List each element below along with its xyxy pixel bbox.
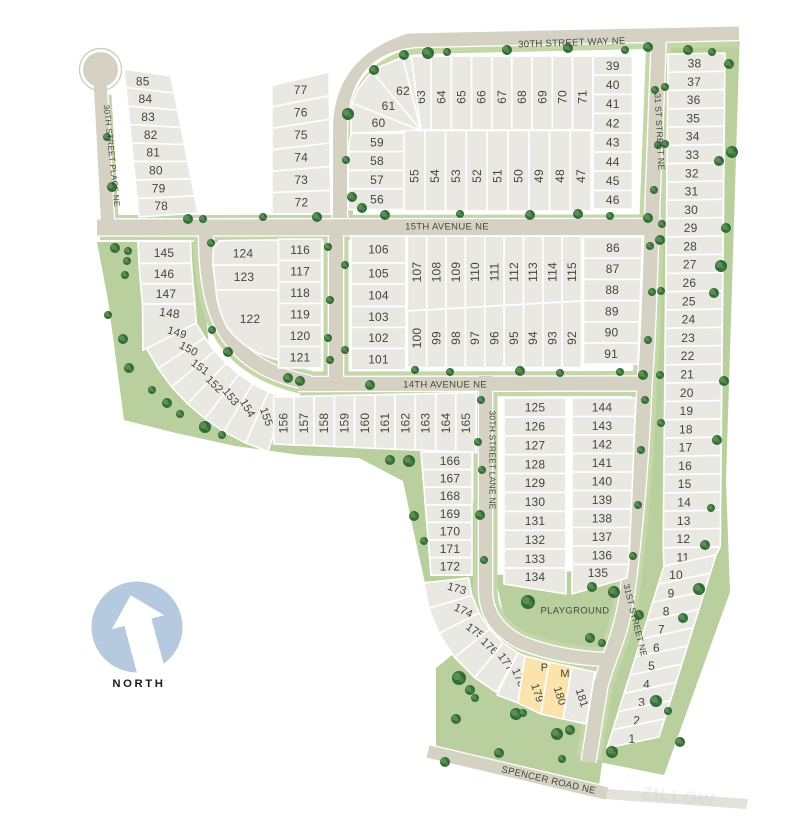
- svg-text:127: 127: [525, 438, 546, 452]
- svg-text:94: 94: [526, 331, 540, 345]
- svg-text:19: 19: [680, 404, 694, 418]
- svg-text:108: 108: [429, 262, 443, 283]
- svg-text:164: 164: [439, 413, 453, 434]
- svg-text:32: 32: [685, 166, 699, 180]
- svg-text:113: 113: [526, 262, 540, 282]
- svg-text:71: 71: [576, 90, 590, 104]
- svg-text:129: 129: [525, 476, 546, 490]
- svg-text:42: 42: [606, 116, 620, 130]
- svg-text:53: 53: [449, 169, 463, 183]
- svg-text:104: 104: [368, 288, 389, 302]
- svg-text:38: 38: [688, 57, 702, 71]
- svg-text:97: 97: [468, 331, 482, 345]
- svg-text:111: 111: [488, 262, 502, 281]
- svg-text:139: 139: [592, 493, 613, 507]
- svg-text:51: 51: [491, 169, 505, 183]
- svg-text:170: 170: [440, 524, 461, 538]
- svg-text:112: 112: [507, 262, 521, 282]
- svg-text:145: 145: [154, 246, 175, 260]
- svg-text:136: 136: [592, 549, 613, 563]
- svg-text:57: 57: [370, 173, 384, 187]
- svg-text:131: 131: [525, 514, 546, 528]
- svg-text:21: 21: [680, 368, 694, 382]
- svg-text:26: 26: [683, 276, 697, 290]
- svg-text:54: 54: [428, 169, 442, 183]
- svg-text:55: 55: [407, 169, 421, 183]
- svg-text:31: 31: [685, 185, 699, 199]
- svg-text:96: 96: [488, 331, 502, 345]
- svg-text:158: 158: [317, 413, 331, 434]
- svg-text:118: 118: [290, 286, 310, 300]
- svg-text:68: 68: [515, 90, 529, 104]
- svg-text:62: 62: [396, 84, 410, 98]
- svg-text:20: 20: [680, 386, 694, 400]
- svg-text:88: 88: [605, 283, 619, 297]
- svg-text:73: 73: [294, 173, 308, 187]
- svg-text:147: 147: [156, 287, 177, 301]
- svg-text:76: 76: [294, 106, 308, 120]
- svg-text:30TH STREET LANE NE: 30TH STREET LANE NE: [488, 410, 498, 509]
- svg-text:66: 66: [475, 90, 489, 104]
- svg-text:83: 83: [141, 110, 155, 124]
- svg-text:169: 169: [440, 507, 461, 521]
- svg-text:82: 82: [144, 128, 158, 142]
- svg-text:159: 159: [338, 413, 352, 434]
- svg-text:121: 121: [290, 350, 311, 364]
- svg-text:59: 59: [370, 136, 384, 150]
- svg-text:123: 123: [234, 270, 255, 284]
- svg-text:135: 135: [588, 566, 609, 580]
- svg-text:87: 87: [606, 262, 620, 276]
- svg-text:95: 95: [507, 331, 521, 345]
- svg-text:115: 115: [565, 262, 579, 282]
- svg-text:109: 109: [449, 262, 463, 283]
- svg-text:172: 172: [440, 560, 461, 574]
- svg-text:114: 114: [546, 262, 560, 282]
- svg-text:15: 15: [678, 477, 692, 491]
- svg-text:132: 132: [525, 533, 546, 547]
- svg-text:133: 133: [525, 552, 546, 566]
- svg-text:85: 85: [136, 74, 150, 88]
- svg-text:171: 171: [440, 542, 461, 556]
- svg-text:M: M: [560, 668, 569, 680]
- svg-text:93: 93: [546, 331, 560, 345]
- svg-text:35: 35: [686, 111, 700, 125]
- svg-text:14TH AVENUE NE: 14TH AVENUE NE: [403, 380, 487, 391]
- svg-text:33: 33: [686, 148, 700, 162]
- svg-text:27: 27: [683, 258, 697, 272]
- svg-text:22: 22: [681, 349, 695, 363]
- svg-text:36: 36: [687, 93, 701, 107]
- svg-text:162: 162: [398, 413, 412, 434]
- svg-text:17: 17: [679, 441, 693, 455]
- svg-text:78: 78: [154, 199, 168, 213]
- svg-text:67: 67: [495, 90, 509, 104]
- svg-text:165: 165: [459, 413, 473, 434]
- svg-text:44: 44: [606, 155, 620, 169]
- svg-text:157: 157: [297, 413, 311, 434]
- svg-text:130: 130: [525, 495, 546, 509]
- svg-text:106: 106: [368, 243, 389, 257]
- svg-text:122: 122: [240, 312, 261, 326]
- svg-text:98: 98: [449, 331, 463, 345]
- svg-text:146: 146: [154, 267, 175, 281]
- svg-text:69: 69: [535, 90, 549, 104]
- svg-text:119: 119: [290, 307, 310, 321]
- svg-text:105: 105: [368, 267, 389, 281]
- svg-text:103: 103: [368, 310, 389, 324]
- svg-text:110: 110: [468, 262, 482, 282]
- svg-text:161: 161: [378, 413, 392, 434]
- svg-text:37: 37: [687, 75, 701, 89]
- svg-text:72: 72: [295, 196, 309, 210]
- svg-text:PLAYGROUND: PLAYGROUND: [541, 605, 610, 616]
- svg-text:91: 91: [604, 347, 618, 361]
- svg-text:79: 79: [152, 181, 166, 195]
- svg-text:86: 86: [606, 241, 620, 255]
- svg-text:24: 24: [682, 313, 696, 327]
- svg-text:160: 160: [358, 413, 372, 434]
- svg-text:74: 74: [294, 151, 308, 165]
- svg-text:107: 107: [410, 262, 424, 283]
- svg-text:47: 47: [574, 169, 588, 183]
- svg-text:128: 128: [525, 457, 546, 471]
- svg-text:41: 41: [606, 97, 620, 111]
- svg-text:65: 65: [455, 90, 469, 104]
- svg-text:140: 140: [592, 474, 613, 488]
- svg-text:16: 16: [678, 459, 692, 473]
- svg-text:43: 43: [606, 136, 620, 150]
- svg-text:15TH AVENUE NE: 15TH AVENUE NE: [405, 222, 489, 233]
- svg-text:25: 25: [682, 294, 696, 308]
- svg-text:143: 143: [592, 419, 613, 433]
- svg-text:46: 46: [606, 193, 620, 207]
- svg-text:80: 80: [149, 164, 163, 178]
- svg-text:163: 163: [419, 413, 433, 434]
- svg-text:77: 77: [294, 83, 308, 97]
- svg-text:1: 1: [628, 732, 635, 746]
- svg-text:167: 167: [440, 472, 461, 486]
- svg-text:138: 138: [592, 512, 613, 526]
- svg-text:40: 40: [606, 78, 620, 92]
- svg-text:120: 120: [290, 329, 311, 343]
- svg-text:134: 134: [525, 570, 546, 584]
- svg-text:81: 81: [146, 146, 160, 160]
- svg-text:30: 30: [684, 203, 698, 217]
- svg-text:117: 117: [290, 264, 310, 278]
- svg-text:90: 90: [605, 326, 619, 340]
- svg-text:126: 126: [525, 420, 546, 434]
- svg-text:101: 101: [368, 352, 389, 366]
- svg-text:48: 48: [553, 169, 567, 183]
- svg-text:34: 34: [686, 130, 700, 144]
- svg-text:60: 60: [372, 116, 386, 130]
- svg-text:39: 39: [606, 59, 620, 73]
- svg-text:142: 142: [592, 437, 613, 451]
- svg-text:23: 23: [681, 331, 695, 345]
- svg-text:12: 12: [677, 532, 691, 546]
- svg-text:89: 89: [605, 304, 619, 318]
- svg-text:125: 125: [525, 401, 546, 415]
- svg-text:18: 18: [679, 422, 693, 436]
- svg-text:52: 52: [470, 169, 484, 183]
- svg-text:141: 141: [592, 456, 613, 470]
- svg-text:28: 28: [683, 239, 697, 253]
- svg-text:137: 137: [592, 530, 613, 544]
- svg-text:56: 56: [370, 192, 384, 206]
- svg-text:49: 49: [532, 169, 546, 183]
- svg-text:64: 64: [434, 90, 448, 104]
- svg-text:61: 61: [382, 99, 396, 113]
- svg-text:84: 84: [139, 92, 153, 106]
- svg-text:14: 14: [677, 496, 691, 510]
- svg-text:156: 156: [277, 413, 291, 434]
- svg-text:168: 168: [440, 489, 461, 503]
- svg-text:29: 29: [684, 221, 698, 235]
- svg-text:45: 45: [606, 174, 620, 188]
- svg-text:NORTH: NORTH: [112, 678, 165, 690]
- svg-text:70: 70: [556, 90, 570, 104]
- svg-text:148: 148: [158, 305, 180, 322]
- svg-text:50: 50: [511, 169, 525, 183]
- svg-text:92: 92: [565, 331, 579, 345]
- svg-text:144: 144: [592, 400, 613, 414]
- svg-text:99: 99: [429, 331, 443, 345]
- svg-text:13: 13: [677, 514, 691, 528]
- svg-text:166: 166: [440, 454, 461, 468]
- svg-text:75: 75: [294, 128, 308, 142]
- svg-text:116: 116: [290, 243, 310, 257]
- svg-text:102: 102: [368, 331, 389, 345]
- svg-text:100: 100: [410, 328, 424, 349]
- svg-text:124: 124: [233, 247, 254, 261]
- svg-text:58: 58: [370, 154, 384, 168]
